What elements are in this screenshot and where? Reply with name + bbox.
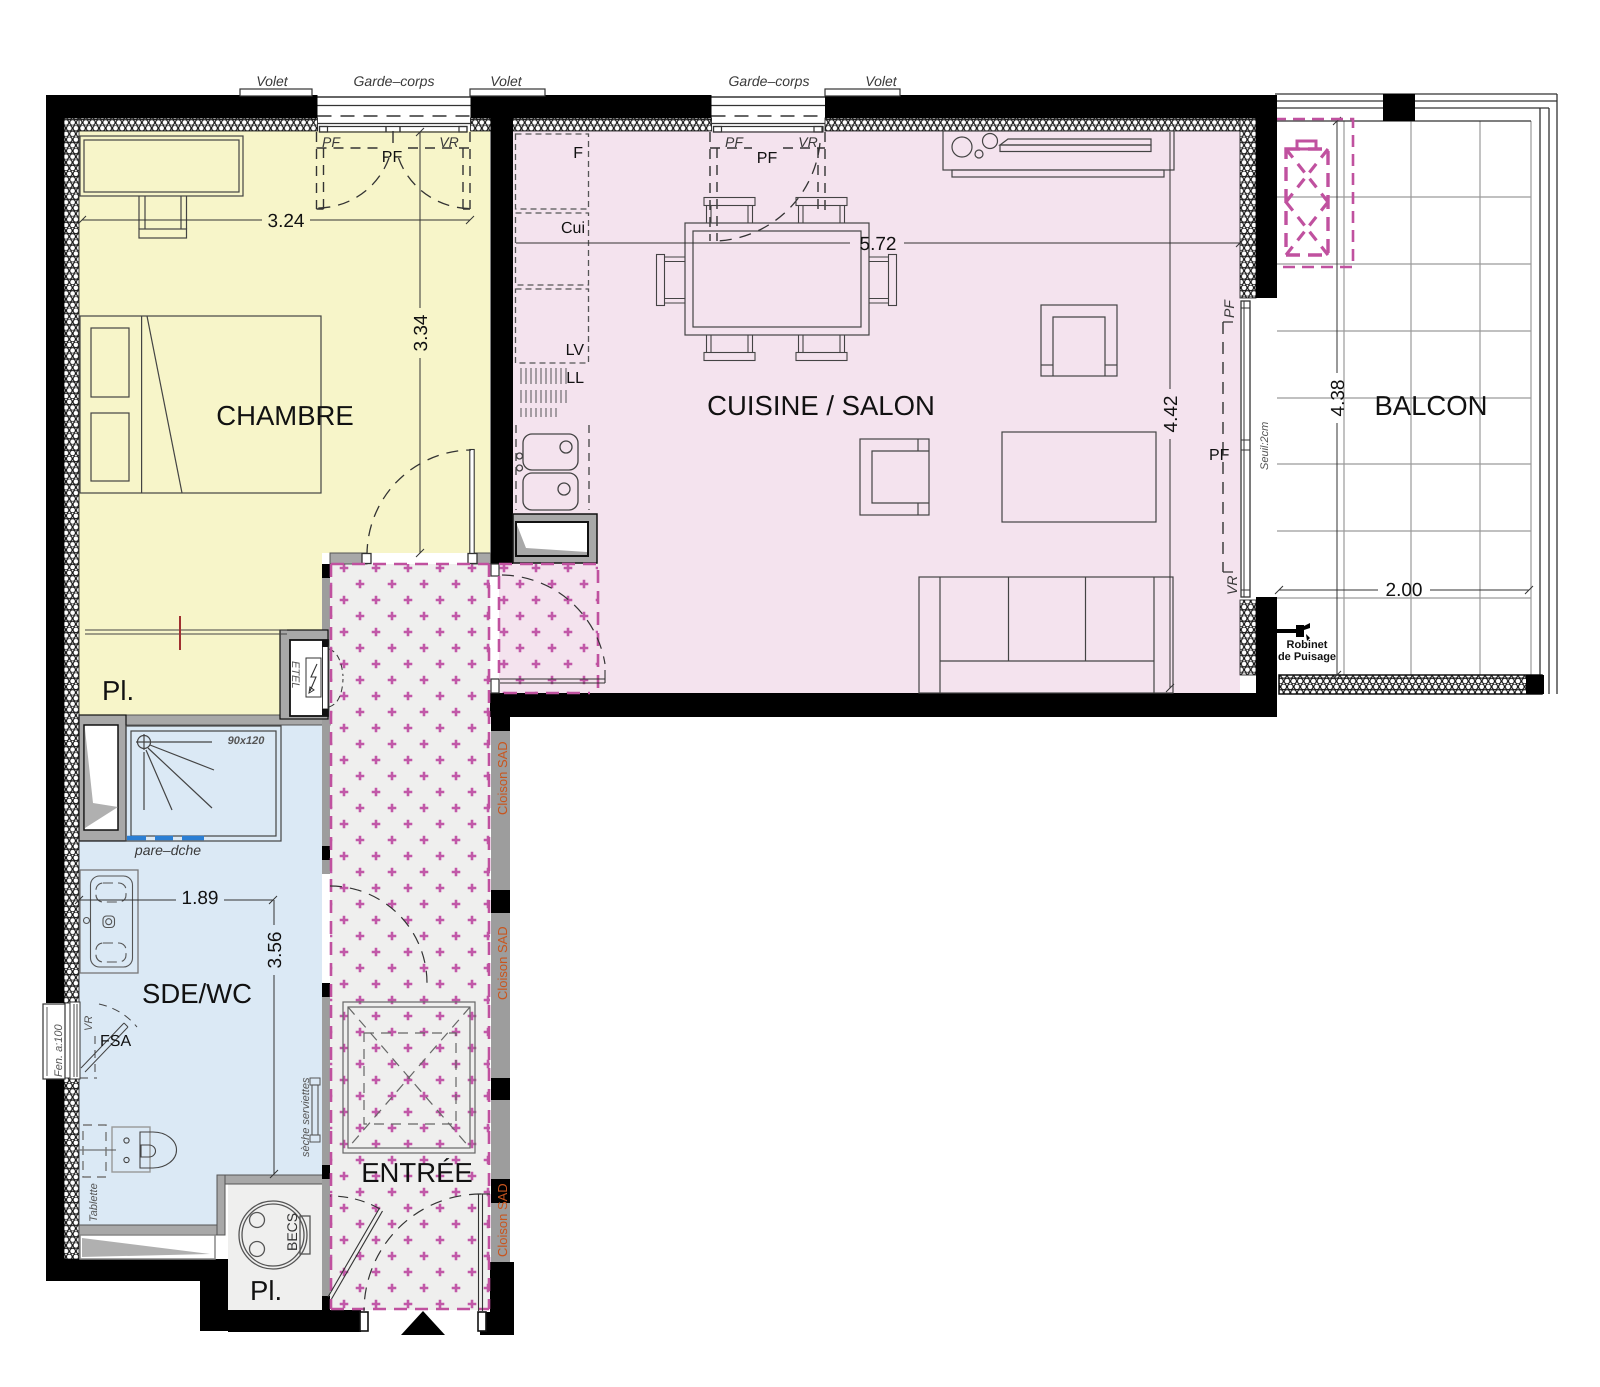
svg-text:PF: PF	[322, 134, 341, 150]
svg-text:4.38: 4.38	[1328, 380, 1349, 417]
svg-text:PF: PF	[382, 149, 403, 166]
svg-text:90x120: 90x120	[228, 735, 266, 747]
svg-text:3.24: 3.24	[268, 211, 305, 232]
svg-text:CHAMBRE: CHAMBRE	[216, 400, 354, 431]
svg-text:ETEL: ETEL	[289, 661, 301, 689]
svg-text:SDE/WC: SDE/WC	[142, 978, 252, 1009]
svg-text:1.89: 1.89	[182, 888, 219, 909]
svg-text:PF: PF	[757, 150, 778, 167]
svg-text:VR: VR	[439, 134, 458, 150]
svg-text:Seuil:2cm: Seuil:2cm	[1259, 422, 1271, 470]
svg-text:4.42: 4.42	[1161, 396, 1182, 433]
svg-text:Cui: Cui	[561, 220, 585, 237]
svg-text:VR: VR	[798, 134, 817, 150]
svg-text:2.00: 2.00	[1386, 580, 1423, 601]
svg-text:FSA: FSA	[100, 1033, 131, 1050]
svg-text:Cloison SAD: Cloison SAD	[495, 926, 510, 1000]
svg-text:Cloison SAD: Cloison SAD	[495, 1183, 510, 1257]
svg-text:VR: VR	[1224, 576, 1240, 595]
svg-text:PF: PF	[725, 134, 744, 150]
svg-text:Volet: Volet	[865, 73, 898, 89]
svg-text:pare–dche: pare–dche	[134, 842, 201, 858]
svg-text:F: F	[573, 145, 583, 162]
svg-text:PF: PF	[1209, 447, 1230, 464]
svg-text:LV: LV	[566, 342, 585, 359]
svg-text:Garde–corps: Garde–corps	[354, 73, 435, 89]
svg-text:Volet: Volet	[490, 73, 523, 89]
svg-text:VR: VR	[83, 1016, 95, 1031]
svg-text:de Puisage: de Puisage	[1278, 651, 1336, 663]
svg-text:Cloison SAD: Cloison SAD	[495, 741, 510, 815]
svg-text:Pl.: Pl.	[250, 1275, 282, 1306]
svg-text:5.72: 5.72	[860, 234, 897, 255]
svg-text:sèche serviettes: sèche serviettes	[300, 1077, 312, 1157]
svg-text:CUISINE / SALON: CUISINE / SALON	[707, 390, 935, 421]
svg-text:LL: LL	[566, 370, 584, 387]
svg-text:3.56: 3.56	[265, 932, 286, 969]
svg-text:Volet: Volet	[256, 73, 289, 89]
svg-text:Fen. a:100: Fen. a:100	[53, 1024, 65, 1077]
svg-text:BECS: BECS	[284, 1213, 300, 1251]
svg-text:Tablette: Tablette	[88, 1183, 100, 1222]
svg-text:BALCON: BALCON	[1374, 390, 1487, 421]
svg-text:ENTRÉE: ENTRÉE	[361, 1157, 473, 1188]
svg-text:Robinet: Robinet	[1287, 639, 1328, 651]
svg-text:PF: PF	[1221, 299, 1237, 318]
svg-text:Pl.: Pl.	[102, 675, 134, 706]
svg-text:Garde–corps: Garde–corps	[729, 73, 810, 89]
svg-text:3.34: 3.34	[411, 314, 432, 351]
